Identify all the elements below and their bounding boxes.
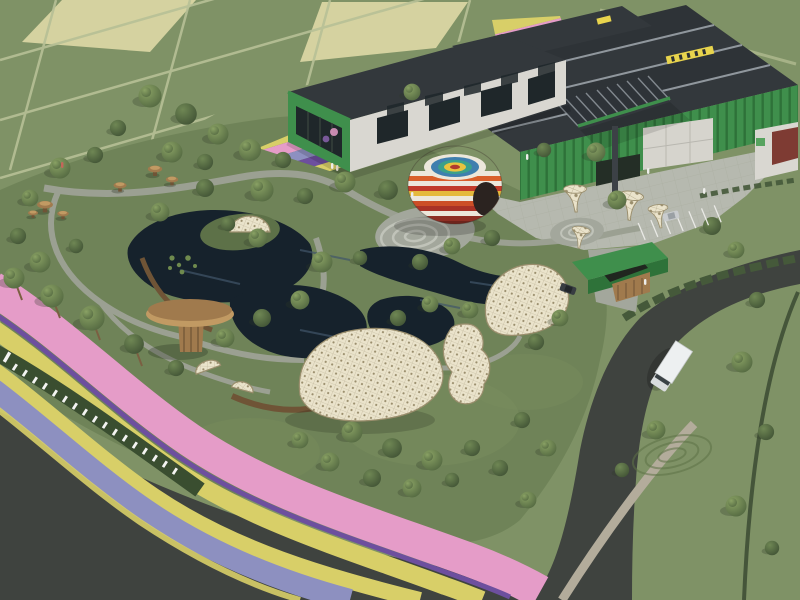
- person: [644, 279, 646, 285]
- green-wall-sign: [756, 138, 765, 146]
- render-viewport: [0, 0, 800, 600]
- canopy-column: [612, 126, 618, 196]
- park-render: [0, 0, 800, 600]
- person: [411, 192, 413, 198]
- person: [61, 162, 63, 168]
- pavilion-cap-top: [148, 299, 232, 321]
- wall-flower-patch: [323, 136, 330, 143]
- person: [336, 165, 338, 171]
- person: [647, 168, 649, 174]
- person: [331, 163, 333, 169]
- wall-flower-patch: [330, 128, 338, 136]
- person: [703, 188, 705, 194]
- person: [526, 154, 528, 160]
